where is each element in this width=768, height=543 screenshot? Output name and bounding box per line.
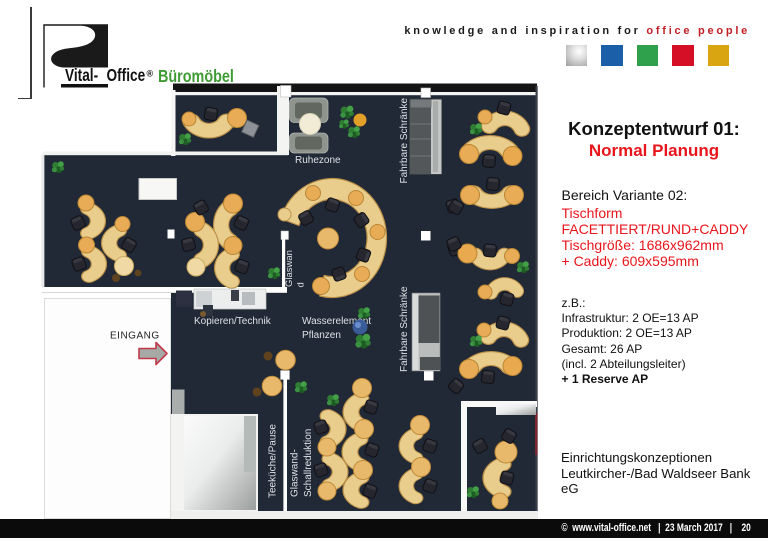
svg-text:EINGANG: EINGANG	[110, 331, 160, 342]
svg-text:Fahrbare Schränke: Fahrbare Schränke	[399, 286, 410, 372]
svg-text:Glaswand-: Glaswand-	[290, 449, 301, 497]
svg-text:Glaswan: Glaswan	[284, 250, 295, 287]
svg-text:Ruhezone: Ruhezone	[295, 155, 341, 166]
svg-text:Teeküche/Pause: Teeküche/Pause	[268, 424, 279, 498]
svg-text:Kopieren/Technik: Kopieren/Technik	[194, 316, 272, 327]
svg-text:d: d	[296, 282, 307, 287]
svg-text:Fahrbare Schränke: Fahrbare Schränke	[399, 97, 410, 183]
svg-text:Pflanzen: Pflanzen	[302, 330, 341, 341]
svg-text:Schallreduktion: Schallreduktion	[303, 429, 314, 497]
